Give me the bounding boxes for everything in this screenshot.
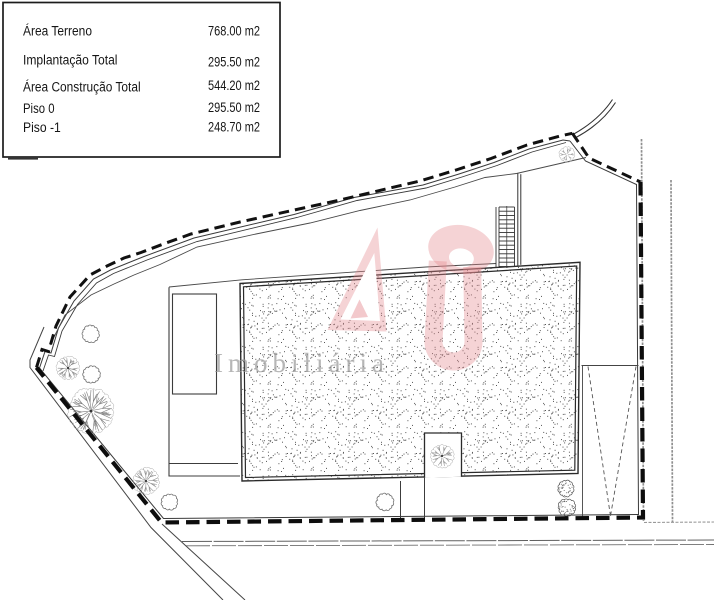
svg-text:544.20 m2: 544.20 m2 bbox=[208, 78, 260, 93]
svg-text:295.50 m2: 295.50 m2 bbox=[208, 100, 260, 115]
svg-text:Área Terreno: Área Terreno bbox=[23, 24, 92, 39]
svg-text:248.70 m2: 248.70 m2 bbox=[208, 120, 260, 135]
svg-text:Piso -1: Piso -1 bbox=[23, 120, 61, 135]
svg-text:295.50 m2: 295.50 m2 bbox=[208, 54, 260, 69]
svg-text:Imobiliária: Imobiliária bbox=[214, 348, 389, 378]
svg-text:Implantação Total: Implantação Total bbox=[23, 53, 118, 68]
svg-text:Piso 0: Piso 0 bbox=[23, 101, 55, 116]
svg-text:768.00 m2: 768.00 m2 bbox=[208, 23, 260, 38]
svg-text:Área Construção Total: Área Construção Total bbox=[23, 80, 141, 95]
